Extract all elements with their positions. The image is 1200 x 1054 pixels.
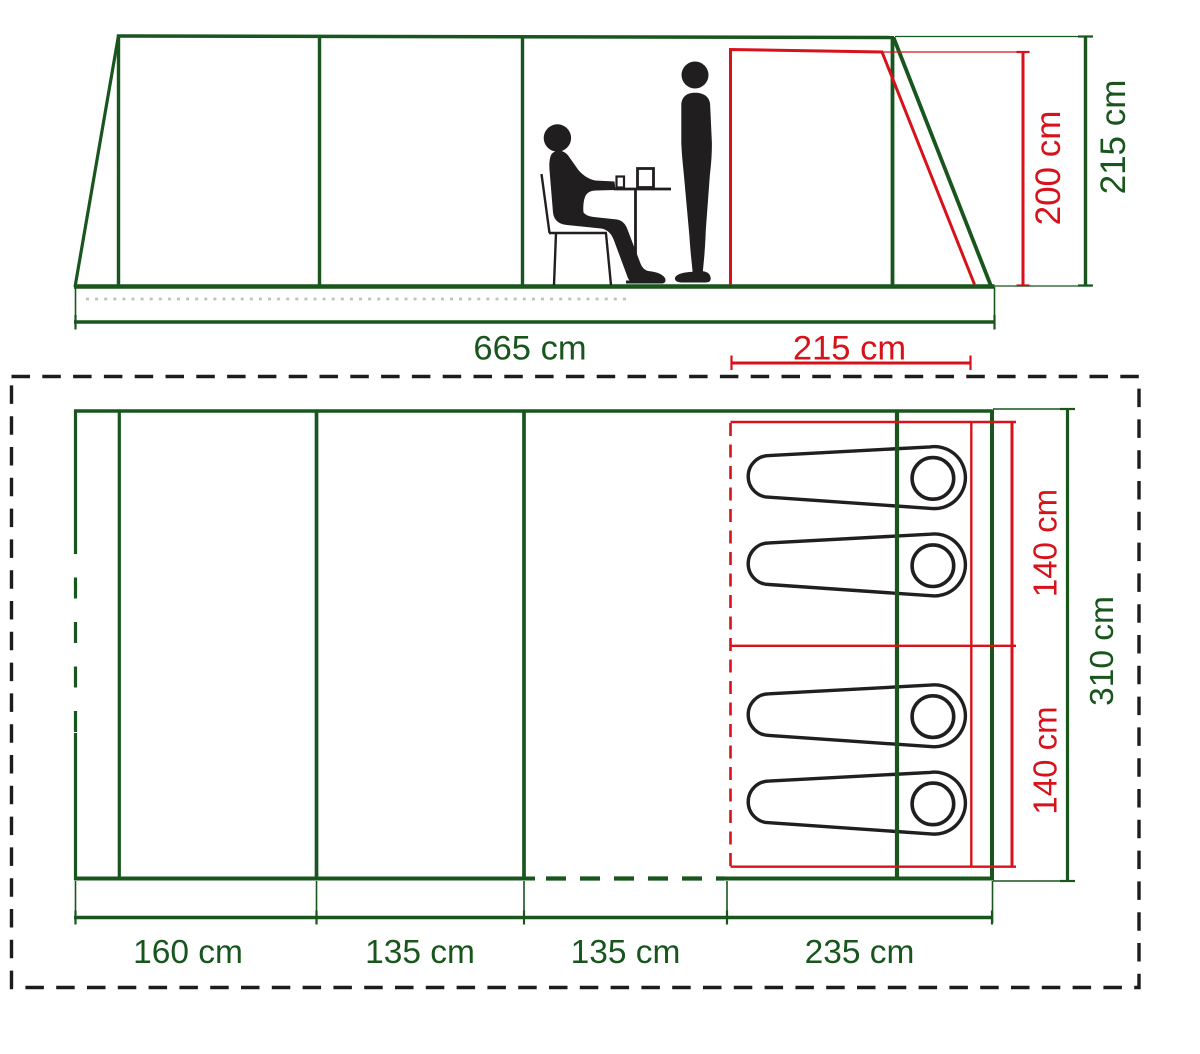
svg-text:200 cm: 200 cm — [1029, 111, 1068, 226]
svg-text:235 cm: 235 cm — [805, 934, 915, 971]
svg-text:135 cm: 135 cm — [365, 934, 475, 971]
svg-text:215 cm: 215 cm — [793, 330, 906, 368]
svg-text:140 cm: 140 cm — [1027, 706, 1064, 814]
svg-text:310 cm: 310 cm — [1084, 596, 1121, 706]
svg-text:160 cm: 160 cm — [133, 934, 243, 971]
svg-text:215 cm: 215 cm — [1094, 80, 1133, 195]
svg-text:135 cm: 135 cm — [571, 934, 681, 971]
svg-text:665 cm: 665 cm — [473, 330, 586, 368]
svg-text:140 cm: 140 cm — [1027, 489, 1064, 597]
